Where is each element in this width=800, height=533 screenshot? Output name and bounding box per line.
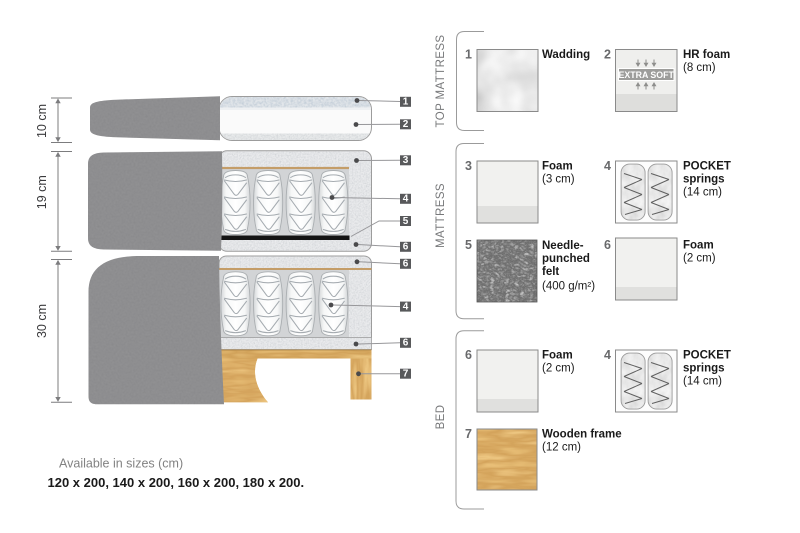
svg-text:POCKET: POCKET — [683, 350, 731, 362]
svg-text:POCKET: POCKET — [683, 161, 731, 173]
svg-text:(14 cm): (14 cm) — [683, 376, 722, 388]
svg-text:4: 4 — [403, 301, 409, 312]
svg-text:(8 cm): (8 cm) — [683, 62, 716, 74]
svg-text:6: 6 — [403, 338, 409, 349]
svg-text:6: 6 — [403, 242, 409, 253]
svg-text:5: 5 — [465, 238, 472, 252]
svg-text:(3 cm): (3 cm) — [542, 174, 575, 186]
svg-text:Foam: Foam — [542, 350, 573, 362]
svg-text:2: 2 — [604, 48, 611, 62]
svg-text:30 cm: 30 cm — [35, 304, 49, 338]
svg-text:1: 1 — [403, 97, 409, 108]
svg-text:(2 cm): (2 cm) — [683, 253, 716, 265]
svg-text:TOP MATTRESS: TOP MATTRESS — [435, 35, 447, 128]
svg-text:(14 cm): (14 cm) — [683, 187, 722, 199]
svg-text:Available in sizes (cm): Available in sizes (cm) — [59, 457, 183, 471]
svg-text:4: 4 — [604, 159, 611, 173]
svg-text:3: 3 — [403, 155, 409, 166]
svg-text:Needle-: Needle- — [542, 240, 584, 252]
svg-text:5: 5 — [403, 216, 409, 227]
svg-text:EXTRA SOFT: EXTRA SOFT — [619, 70, 675, 80]
svg-text:Foam: Foam — [683, 240, 714, 252]
svg-text:felt: felt — [542, 266, 559, 278]
svg-text:120 x 200, 140 x 200, 160 x 20: 120 x 200, 140 x 200, 160 x 200, 180 x 2… — [48, 475, 305, 490]
svg-text:MATTRESS: MATTRESS — [435, 183, 447, 248]
svg-text:4: 4 — [604, 348, 611, 362]
svg-text:19 cm: 19 cm — [35, 175, 49, 209]
svg-text:HR foam: HR foam — [683, 49, 730, 61]
svg-text:4: 4 — [403, 194, 409, 205]
svg-text:1: 1 — [465, 48, 472, 62]
svg-text:Wadding: Wadding — [542, 49, 590, 61]
svg-text:BED: BED — [435, 405, 447, 430]
svg-text:6: 6 — [465, 348, 472, 362]
svg-text:3: 3 — [465, 159, 472, 173]
svg-text:6: 6 — [403, 259, 409, 270]
svg-text:(2 cm): (2 cm) — [542, 363, 575, 375]
svg-text:2: 2 — [403, 119, 409, 130]
svg-text:punched: punched — [542, 253, 590, 265]
svg-text:7: 7 — [403, 369, 409, 380]
svg-text:Wooden frame: Wooden frame — [542, 429, 622, 441]
svg-text:springs: springs — [683, 363, 725, 375]
svg-text:springs: springs — [683, 174, 725, 186]
svg-text:7: 7 — [465, 427, 472, 441]
svg-text:Foam: Foam — [542, 161, 573, 173]
svg-text:10 cm: 10 cm — [35, 104, 49, 138]
svg-text:6: 6 — [604, 238, 611, 252]
svg-text:(12 cm): (12 cm) — [542, 442, 581, 454]
svg-text:(400 g/m²): (400 g/m²) — [542, 281, 595, 293]
